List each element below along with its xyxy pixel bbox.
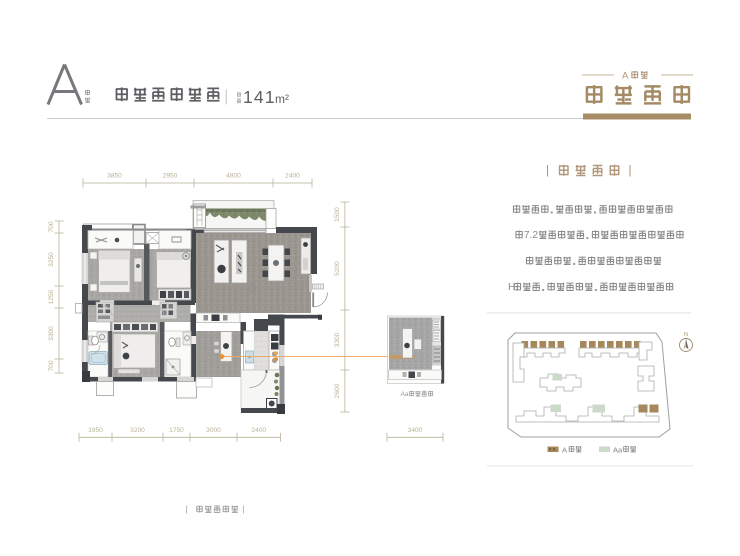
svg-text:1750: 1750 [169, 427, 184, 434]
svg-text:5200: 5200 [334, 261, 341, 276]
svg-text:700: 700 [48, 360, 55, 371]
svg-text:1500: 1500 [334, 207, 341, 222]
svg-text:3400: 3400 [408, 427, 423, 434]
svg-text:N: N [684, 332, 688, 338]
svg-text:3200: 3200 [130, 427, 145, 434]
svg-text:2400: 2400 [285, 173, 300, 180]
svg-text:3300: 3300 [334, 332, 341, 347]
svg-text:4800: 4800 [226, 173, 241, 180]
svg-text:1250: 1250 [48, 289, 55, 304]
svg-text:2600: 2600 [334, 383, 341, 398]
svg-text:700: 700 [48, 221, 55, 232]
svg-text:7.2: 7.2 [524, 230, 538, 241]
svg-text:2400: 2400 [251, 427, 266, 434]
svg-text:141: 141 [243, 87, 276, 107]
svg-text:2950: 2950 [163, 173, 178, 180]
svg-text:Aa: Aa [613, 446, 623, 455]
svg-text:3850: 3850 [107, 173, 122, 180]
svg-text:Aa: Aa [401, 391, 409, 398]
svg-text:1950: 1950 [88, 427, 103, 434]
svg-text:A: A [562, 446, 567, 455]
svg-text:m²: m² [275, 92, 289, 106]
svg-text:3300: 3300 [48, 326, 55, 341]
svg-text:A: A [622, 71, 629, 82]
svg-text:3250: 3250 [48, 252, 55, 267]
svg-text:3000: 3000 [206, 427, 221, 434]
